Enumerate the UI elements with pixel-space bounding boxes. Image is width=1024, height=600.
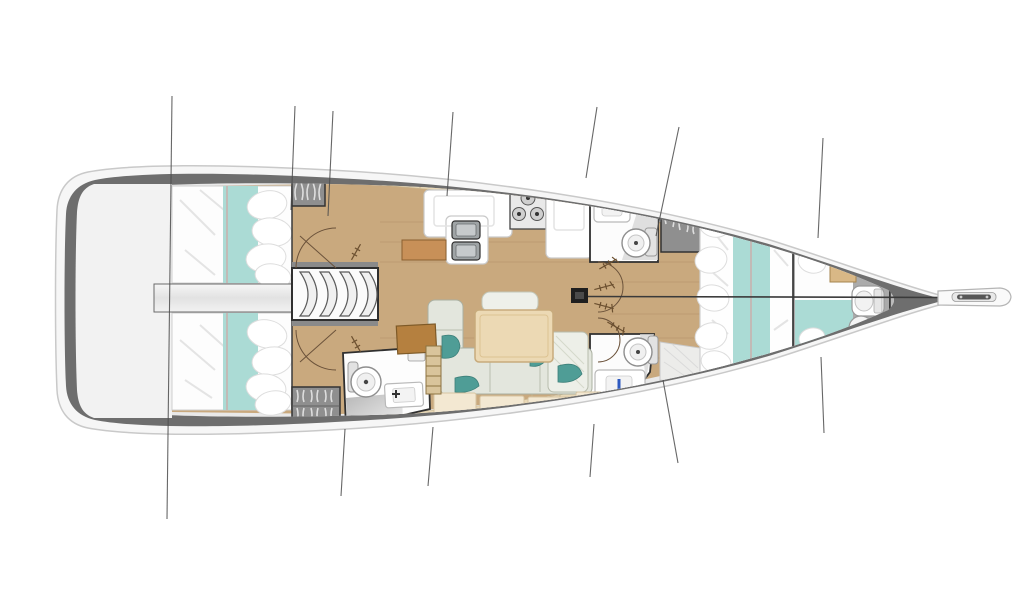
shroud-line-9 xyxy=(428,427,433,486)
head-top xyxy=(590,188,658,262)
galley-side-locker xyxy=(402,240,446,260)
shroud-line-8 xyxy=(341,429,345,496)
head-top-toilet xyxy=(622,228,657,257)
shroud-line-7 xyxy=(818,138,823,238)
forestay-line xyxy=(588,297,948,298)
transom-walkway xyxy=(154,284,292,312)
mast-core xyxy=(575,292,584,299)
salon-table xyxy=(475,310,553,362)
head-bottom-right-toilet xyxy=(624,336,658,366)
bow-sprit xyxy=(938,288,1011,306)
nav-seat-slats xyxy=(426,346,441,394)
shroud-line-10 xyxy=(590,424,594,477)
companionway-steps xyxy=(292,262,378,326)
aft-cabin-port xyxy=(172,186,294,291)
plan-canvas xyxy=(0,0,1024,600)
shroud-line-12 xyxy=(821,357,824,433)
forepeak-toilet xyxy=(852,286,884,316)
bow-sprit-pin-2 xyxy=(986,296,989,299)
shroud-line-11 xyxy=(663,380,678,463)
bow-sprit-pin-1 xyxy=(960,296,963,299)
shroud-line-5 xyxy=(586,107,597,178)
salon-backrest xyxy=(482,292,538,312)
head-bottom-right-faucet xyxy=(618,379,621,389)
yacht-layout-plan xyxy=(0,0,1024,600)
aft-cabin-starboard xyxy=(172,313,294,418)
